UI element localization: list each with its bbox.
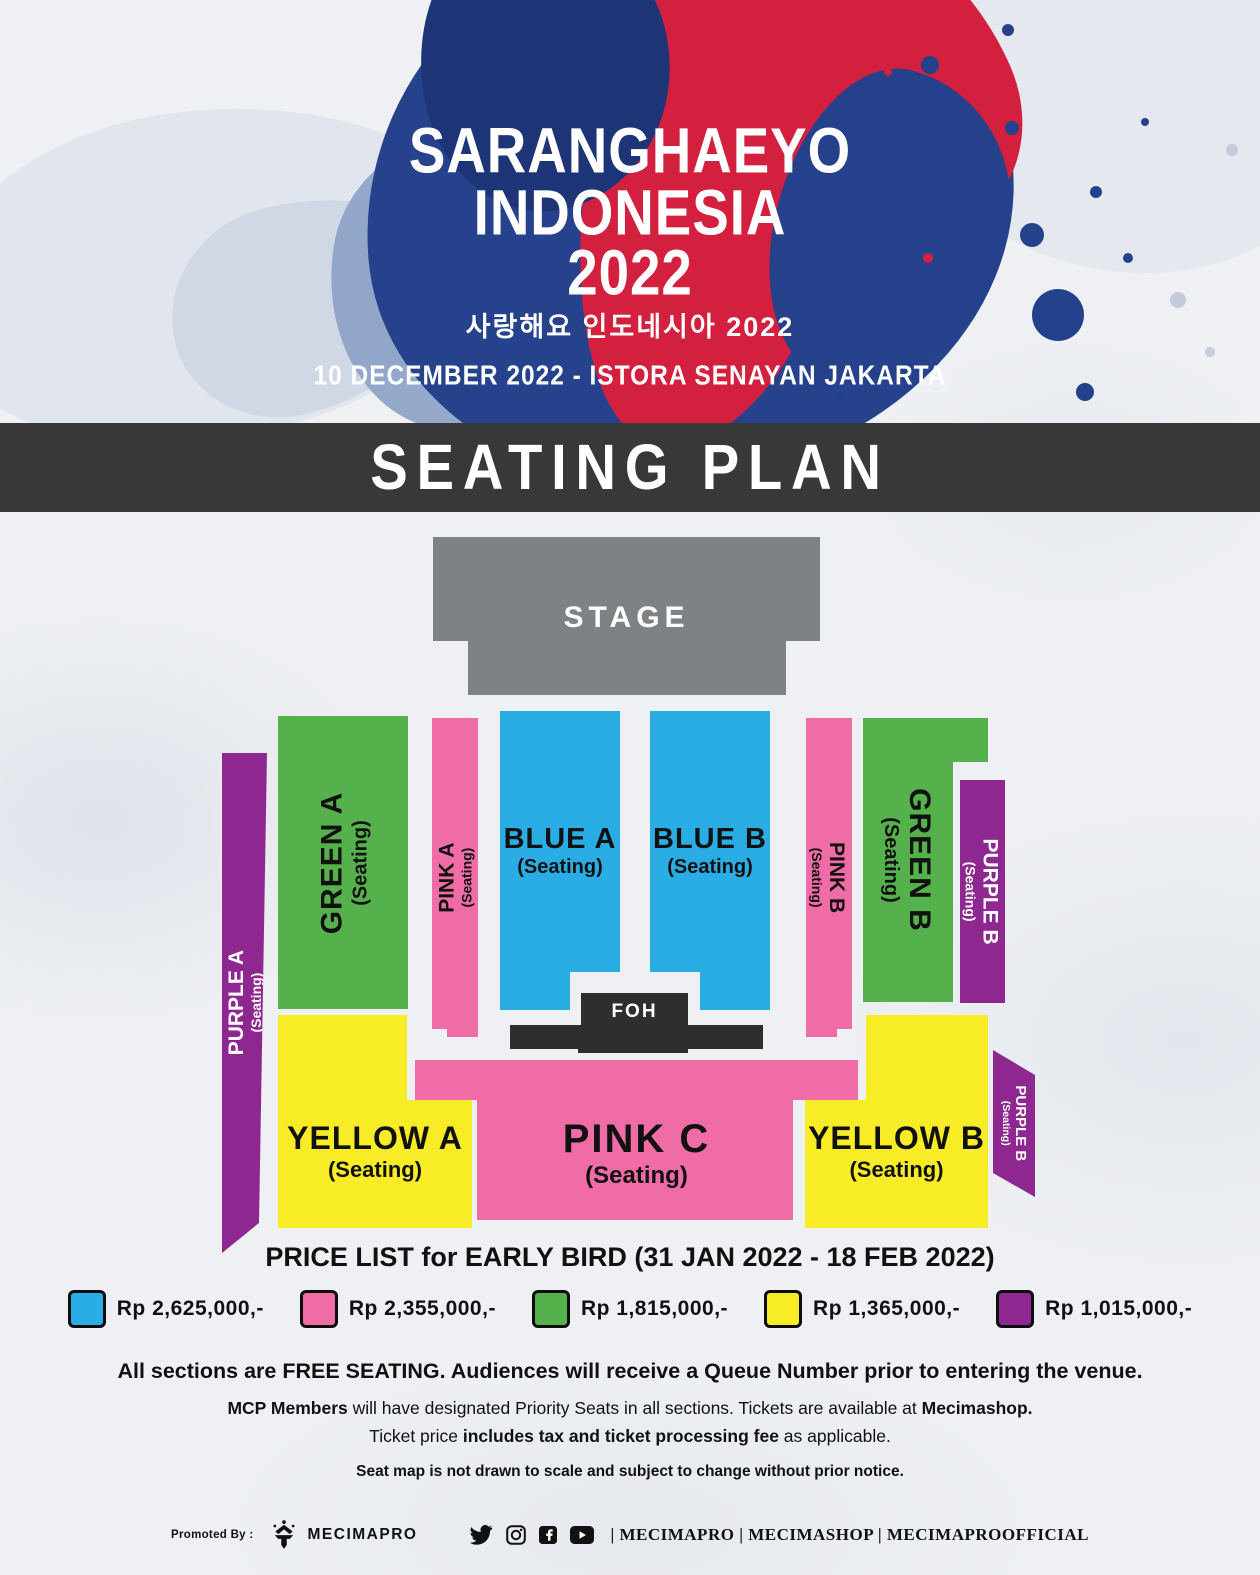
section-label: YELLOW A — [287, 1120, 463, 1157]
promoted-by-label: Promoted By : — [171, 1529, 254, 1541]
section-label: YELLOW B — [808, 1120, 985, 1157]
foh-label: FOH — [581, 1001, 688, 1023]
price-label: Rp 1,815,000,- — [581, 1297, 728, 1321]
note-segment: will have designated Priority Seats in a… — [348, 1398, 922, 1418]
facebook-icon — [539, 1526, 557, 1544]
splatter-dot — [1002, 24, 1014, 36]
section-blue-b: BLUE B (Seating) — [650, 711, 770, 1010]
note-disclaimer: Seat map is not drawn to scale and subje… — [0, 1463, 1260, 1481]
section-label: GREEN A — [315, 791, 349, 934]
event-subtitle-korean: 사랑해요 인도네시아 2022 — [0, 305, 1260, 344]
price-legend-item-purple: Rp 1,015,000,- — [996, 1290, 1192, 1328]
section-sublabel: (Seating) — [517, 856, 603, 879]
stage: STAGE — [433, 537, 820, 695]
splatter-dot — [834, 392, 846, 404]
youtube-icon — [570, 1526, 594, 1544]
note-ticket-price: Ticket price includes tax and ticket pro… — [0, 1426, 1260, 1447]
section-pink-c: PINK C (Seating) — [415, 1060, 858, 1220]
section-yellow-a: YELLOW A (Seating) — [278, 1015, 472, 1228]
note-bold-segment: includes tax and ticket processing fee — [463, 1426, 779, 1446]
section-sublabel: (Seating) — [328, 1157, 422, 1183]
price-label: Rp 2,625,000,- — [117, 1297, 264, 1321]
mecimapro-crown-icon — [264, 1517, 304, 1553]
splatter-dot — [841, 27, 855, 41]
price-label: Rp 1,015,000,- — [1045, 1297, 1192, 1321]
seating-plan-title: SEATING PLAN — [19, 419, 1241, 517]
section-sublabel: (Seating) — [809, 848, 825, 908]
seating-plan-banner: SEATING PLAN — [0, 423, 1260, 512]
section-purple-b-lower: PURPLE B (Seating) — [993, 1050, 1035, 1197]
stage-label: STAGE — [433, 601, 820, 635]
social-handles: | MECIMAPRO | MECIMASHOP | MECIMAPROOFFI… — [610, 1525, 1089, 1545]
blue-color-swatch — [68, 1290, 106, 1328]
price-legend-item-green: Rp 1,815,000,- — [532, 1290, 728, 1328]
price-legend-item-blue: Rp 2,625,000,- — [68, 1290, 264, 1328]
price-list-heading: PRICE LIST for EARLY BIRD (31 JAN 2022 -… — [0, 1242, 1260, 1273]
twitter-icon — [469, 1525, 493, 1545]
price-legend: Rp 2,625,000,- Rp 2,355,000,- Rp 1,815,0… — [0, 1290, 1260, 1328]
section-label: PURPLE A — [225, 950, 249, 1055]
purple-color-swatch — [996, 1290, 1034, 1328]
price-legend-item-yellow: Rp 1,365,000,- — [764, 1290, 960, 1328]
splatter-dot — [921, 56, 939, 74]
event-date-venue: 10 DECEMBER 2022 - ISTORA SENAYAN JAKART… — [13, 361, 1248, 393]
note-free-seating: All sections are FREE SEATING. Audiences… — [0, 1359, 1260, 1384]
section-blue-a: BLUE A (Seating) — [500, 711, 620, 1010]
section-sublabel: (Seating) — [459, 848, 475, 908]
price-legend-item-pink: Rp 2,355,000,- — [300, 1290, 496, 1328]
mecimapro-logo: MECIMAPRO — [264, 1517, 418, 1553]
splatter-dot — [1205, 347, 1215, 357]
seating-map: STAGE PURPLE A (Seating) GREEN A (Seatin… — [0, 512, 1260, 1244]
section-label: PURPLE B — [1011, 1086, 1028, 1162]
price-label: Rp 1,365,000,- — [813, 1297, 960, 1321]
green-color-swatch — [532, 1290, 570, 1328]
section-sublabel: (Seating) — [880, 817, 902, 903]
section-label: BLUE A — [504, 823, 617, 856]
promoter-bar: Promoted By : MECIMAPRO — [0, 1513, 1260, 1557]
note-segment: Ticket price — [369, 1426, 463, 1446]
event-seating-poster: SARANGHAEYO INDONESIA 2022 사랑해요 인도네시아 20… — [0, 0, 1260, 1575]
section-yellow-b: YELLOW B (Seating) — [805, 1015, 988, 1228]
mecimapro-wordmark: MECIMAPRO — [308, 1526, 418, 1544]
social-icons — [469, 1525, 594, 1545]
splatter-dot — [884, 68, 892, 76]
section-sublabel: (Seating) — [1000, 1101, 1012, 1146]
section-sublabel: (Seating) — [849, 1157, 943, 1183]
section-sublabel: (Seating) — [667, 856, 753, 879]
price-label: Rp 2,355,000,- — [349, 1297, 496, 1321]
note-mcp-members: MCP Members will have designated Priorit… — [0, 1398, 1260, 1419]
event-title-line3: 2022 — [25, 236, 1235, 310]
section-purple-a: PURPLE A (Seating) — [222, 753, 267, 1253]
header-artwork: SARANGHAEYO INDONESIA 2022 사랑해요 인도네시아 20… — [0, 0, 1260, 423]
section-label: PINK B — [825, 842, 849, 913]
instagram-icon — [506, 1525, 526, 1545]
section-label: BLUE B — [653, 823, 767, 856]
section-sublabel: (Seating) — [585, 1162, 688, 1190]
section-green-a: GREEN A (Seating) — [278, 716, 408, 1009]
section-label: PINK A — [435, 842, 459, 912]
note-bold-segment: Mecimashop. — [922, 1398, 1033, 1418]
note-bold-segment: MCP Members — [227, 1398, 347, 1418]
note-segment: as applicable. — [779, 1426, 891, 1446]
section-sublabel: (Seating) — [963, 862, 979, 922]
section-pink-a: PINK A (Seating) — [432, 718, 478, 1037]
pink-color-swatch — [300, 1290, 338, 1328]
section-label: GREEN B — [902, 788, 936, 932]
section-label: PURPLE B — [979, 838, 1003, 944]
yellow-color-swatch — [764, 1290, 802, 1328]
section-sublabel: (Seating) — [248, 973, 264, 1033]
section-pink-b: PINK B (Seating) — [806, 718, 852, 1037]
section-label: PINK C — [563, 1117, 711, 1162]
section-purple-b-upper: PURPLE B (Seating) — [960, 780, 1005, 1003]
section-sublabel: (Seating) — [349, 820, 371, 906]
